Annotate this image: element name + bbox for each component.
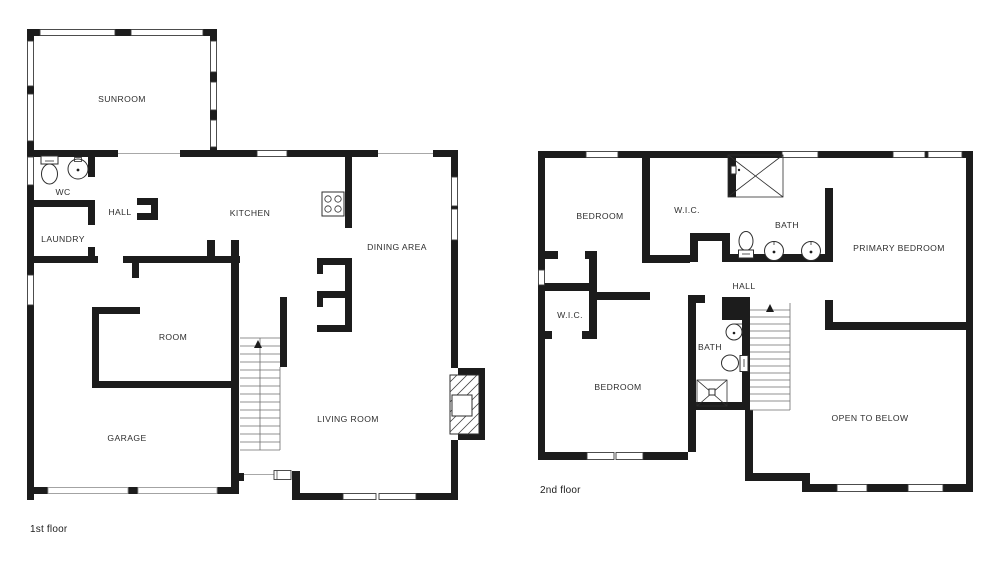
room-label-primary-bedroom: PRIMARY BEDROOM: [853, 243, 945, 253]
room-label-bedroom-bottom: BEDROOM: [594, 382, 641, 392]
window: [257, 151, 287, 157]
room-label-kitchen: KITCHEN: [230, 208, 271, 218]
window: [28, 94, 34, 141]
room-label-wc: WC: [55, 187, 70, 197]
first-floor: SUNROOM WC HALL LAUNDRY KITCHEN DINING A…: [27, 29, 485, 535]
garage-door-icon: [138, 488, 217, 494]
window: [131, 30, 203, 36]
window: [616, 453, 643, 460]
floor2-caption: 2nd floor: [540, 485, 581, 496]
sink-icon: [765, 242, 784, 261]
shower-icon: [728, 155, 783, 197]
stove-icon: [322, 192, 344, 216]
toilet-icon: [41, 156, 58, 184]
room-label-living-room: LIVING ROOM: [317, 414, 379, 424]
window: [28, 41, 34, 86]
window: [837, 485, 867, 492]
window: [452, 177, 458, 206]
room-label-open-to-below: OPEN TO BELOW: [832, 413, 909, 423]
room-label-hall: HALL: [732, 281, 755, 291]
window: [211, 82, 217, 110]
window: [586, 152, 618, 158]
window: [379, 494, 416, 500]
room-label-bath-lower: BATH: [698, 342, 722, 352]
room-label-wic-left: W.I.C.: [557, 310, 583, 320]
window: [28, 275, 34, 305]
window: [539, 270, 545, 285]
second-floor-walls: [538, 151, 973, 492]
room-label-bath: BATH: [775, 220, 799, 230]
window: [343, 494, 376, 500]
sink-icon: [68, 158, 88, 180]
toilet-icon: [739, 232, 754, 259]
stairs-up-arrow-icon: [254, 340, 262, 348]
room-label-room: ROOM: [159, 332, 187, 342]
window: [452, 209, 458, 240]
stair-treads: [240, 338, 280, 450]
stairs-up-arrow-icon: [766, 304, 774, 312]
first-floor-walls: [27, 29, 485, 500]
window: [893, 152, 925, 158]
window: [587, 453, 614, 460]
room-label-sunroom: SUNROOM: [98, 94, 146, 104]
window: [908, 485, 943, 492]
window: [928, 152, 962, 158]
room-label-dining-area: DINING AREA: [367, 242, 427, 252]
first-floor-stairs: [240, 338, 280, 450]
window: [28, 157, 34, 185]
room-label-hall: HALL: [108, 207, 131, 217]
window: [211, 120, 217, 147]
fireplace-icon: [450, 375, 479, 434]
floor1-caption: 1st floor: [30, 524, 68, 535]
window: [211, 41, 217, 72]
room-label-bedroom: BEDROOM: [576, 211, 623, 221]
first-floor-windows: [28, 30, 458, 500]
floor-plan-canvas: SUNROOM WC HALL LAUNDRY KITCHEN DINING A…: [0, 0, 1000, 562]
entry-door-icon: [274, 471, 291, 480]
toilet-icon: [722, 355, 749, 372]
room-label-laundry: LAUNDRY: [41, 234, 85, 244]
sink-icon: [726, 324, 742, 340]
window: [782, 152, 818, 158]
room-label-garage: GARAGE: [107, 433, 146, 443]
sink-icon: [802, 242, 821, 261]
garage-door-icon: [48, 488, 128, 494]
second-floor: BEDROOM W.I.C. BATH PRIMARY BEDROOM HALL…: [538, 151, 973, 496]
stair-treads: [750, 303, 790, 410]
room-label-wic: W.I.C.: [674, 205, 700, 215]
second-floor-stairs: [750, 303, 790, 410]
floor-plan: SUNROOM WC HALL LAUNDRY KITCHEN DINING A…: [0, 0, 1000, 562]
window: [40, 30, 115, 36]
